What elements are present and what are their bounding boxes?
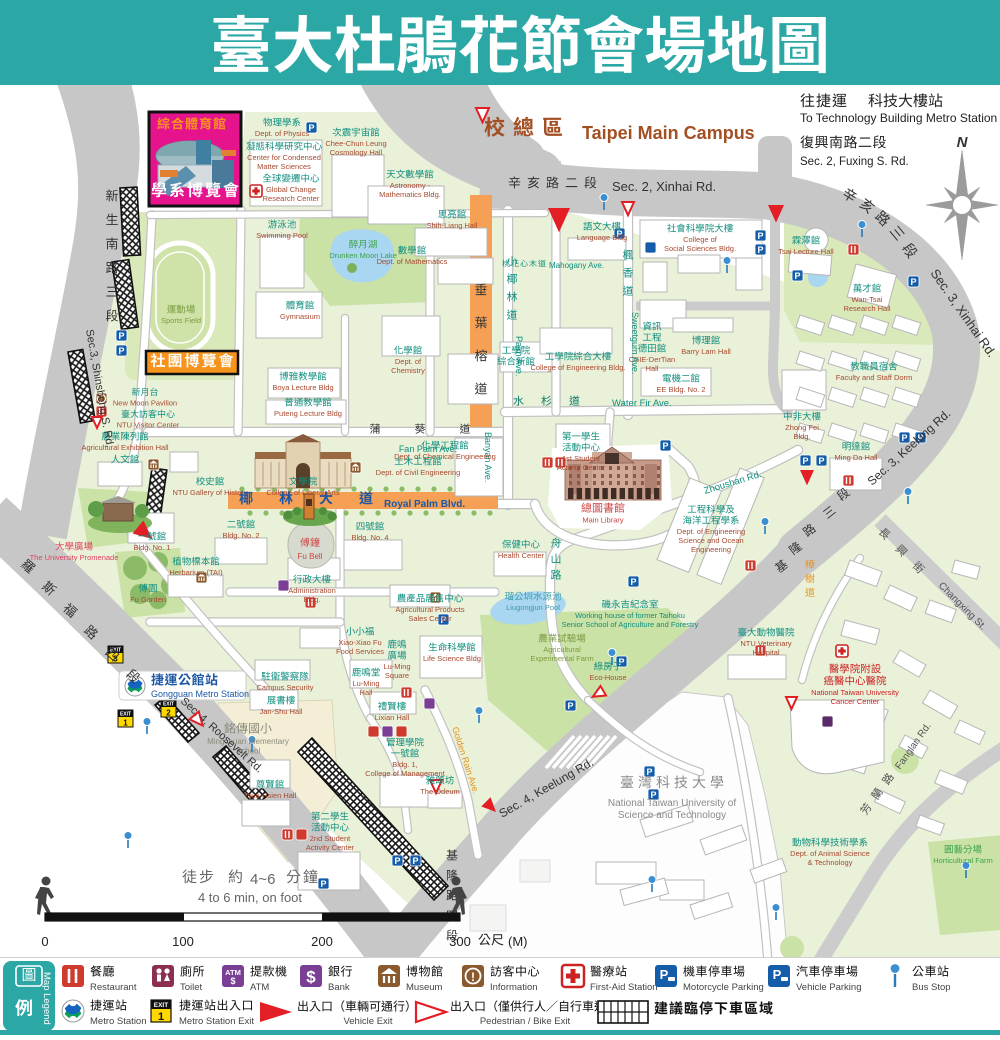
svg-text:Vehicle Exit: Vehicle Exit [343,1016,392,1027]
svg-text:College of Engineering Bldg.: College of Engineering Bldg. [530,363,625,372]
svg-text:EXIT: EXIT [163,702,174,708]
svg-text:College of: College of [683,235,718,244]
svg-text:Liugongjun Pool: Liugongjun Pool [506,603,560,612]
svg-text:Matter Sciences: Matter Sciences [257,162,311,171]
svg-text:Tsai Lecture Hall: Tsai Lecture Hall [778,247,834,256]
svg-text:National Taiwan University of: National Taiwan University of [608,798,736,809]
svg-text:Barry Lam Hall: Barry Lam Hall [681,347,731,356]
svg-text:Gymnasium: Gymnasium [280,312,320,321]
svg-text:P: P [618,657,624,667]
svg-text:$: $ [306,968,316,987]
svg-text:Health Center: Health Center [498,551,545,560]
svg-text:Engineering: Engineering [691,545,731,554]
svg-text:Global Change: Global Change [266,185,316,194]
svg-text:Sports Field: Sports Field [161,316,201,325]
svg-text:Sec. 2, Fuxing S. Rd.: Sec. 2, Fuxing S. Rd. [800,156,909,168]
svg-text:Dept. of Civil Engineering: Dept. of Civil Engineering [376,468,461,477]
svg-text:Museum: Museum [406,982,443,993]
svg-text:Fan Palm Ave.: Fan Palm Ave. [399,444,457,454]
svg-text:Eco-House: Eco-House [589,673,626,682]
svg-text:The University Promenade: The University Promenade [30,553,119,562]
svg-text:P: P [773,967,782,982]
svg-text:Drunken Moon Lake: Drunken Moon Lake [329,251,397,260]
svg-text:P: P [412,856,418,866]
svg-text:Boya Lecture Bldg: Boya Lecture Bldg [272,383,333,392]
svg-text:Bldg.: Bldg. [303,595,320,604]
svg-text:Metro Station Exit: Metro Station Exit [179,1016,254,1027]
svg-text:Bus Stop: Bus Stop [912,982,951,993]
svg-text:Activity Center: Activity Center [557,463,606,472]
svg-text:Life Science Bldg: Life Science Bldg [423,654,481,663]
svg-text:Agricultural Products: Agricultural Products [395,605,464,614]
svg-text:Bldg. No. 1: Bldg. No. 1 [133,543,170,552]
svg-text:NTU Gallery of History: NTU Gallery of History [172,488,247,497]
svg-text:P: P [567,701,573,711]
svg-text:Metro Station: Metro Station [90,1016,147,1027]
svg-text:Mahogany Ave.: Mahogany Ave. [549,261,604,270]
svg-text:P: P [630,577,636,587]
svg-text:Jan-Shu Hall: Jan-Shu Hall [260,707,303,716]
svg-text:300: 300 [449,934,471,949]
svg-text:EE Bldg. No. 2: EE Bldg. No. 2 [656,385,705,394]
svg-text:P: P [646,767,652,777]
svg-text:Dept. of Animal Science: Dept. of Animal Science [790,849,870,858]
svg-text:Campus Security: Campus Security [256,683,313,692]
svg-text:Water Fir Ave.: Water Fir Ave. [612,398,672,409]
svg-text:Astronomy -: Astronomy - [390,181,431,190]
svg-text:NTU Visitor Center: NTU Visitor Center [117,421,180,430]
svg-text:Activity Center: Activity Center [306,843,355,852]
svg-text:Administration: Administration [288,586,336,595]
svg-text:Hospital: Hospital [752,648,779,657]
svg-text:P: P [802,456,808,466]
svg-text:Senior School of Agriculture a: Senior School of Agriculture and Forestr… [562,620,699,629]
svg-text:200: 200 [311,934,333,949]
svg-text:P: P [394,856,400,866]
svg-text:4 to 6 min, on foot: 4 to 6 min, on foot [198,890,302,905]
svg-text:2nd Student: 2nd Student [310,834,351,843]
svg-text:Gongguan Metro Station: Gongguan Metro Station [151,689,249,699]
svg-text:Zhong Fei: Zhong Fei [785,423,819,432]
svg-text:Lu-Ming: Lu-Ming [383,662,410,671]
svg-text:Sec. 2, Xinhai Rd.: Sec. 2, Xinhai Rd. [612,179,716,194]
svg-text:Language Bldg: Language Bldg [577,233,627,242]
svg-text:P: P [660,967,669,982]
svg-text:1: 1 [123,719,128,728]
svg-text:Mathematics Bldg.: Mathematics Bldg. [379,190,441,199]
svg-text:National Taiwan University: National Taiwan University [811,688,899,697]
svg-text:Hall: Hall [646,364,659,373]
svg-text:Agricultural Exhibition Hall: Agricultural Exhibition Hall [81,443,168,452]
svg-text:(M): (M) [508,934,528,949]
svg-text:Fu Garden: Fu Garden [130,595,166,604]
svg-text:Bldg.: Bldg. [793,432,810,441]
svg-text:Lu-Ming: Lu-Ming [352,679,379,688]
svg-text:P: P [662,441,668,451]
svg-text:Map Legend: Map Legend [41,972,52,1025]
svg-text:New Moon Pavilion: New Moon Pavilion [113,399,177,408]
svg-text:Royal Palm Blvd.: Royal Palm Blvd. [384,499,465,510]
svg-text:Sales Center: Sales Center [408,614,452,623]
svg-text:Wan-Tsai: Wan-Tsai [852,295,883,304]
svg-text:College of Management: College of Management [365,769,446,778]
svg-text:Fu Bell: Fu Bell [298,552,323,561]
svg-text:Banyan Ave.: Banyan Ave. [483,432,493,482]
svg-text:Restaurant: Restaurant [90,982,137,993]
svg-text:Bldg. No. 2: Bldg. No. 2 [222,531,259,540]
svg-text:Palm Ave.: Palm Ave. [514,336,524,376]
svg-text:Research Center: Research Center [263,194,320,203]
svg-text:NTU Veterinary: NTU Veterinary [740,639,792,648]
svg-text:P: P [910,277,916,287]
svg-text:Center for Condensed: Center for Condensed [247,153,321,162]
svg-text:Swimming Pool: Swimming Pool [256,231,308,240]
svg-text:P: P [118,346,124,356]
svg-text:N: N [957,134,969,151]
svg-text:Xiao-Xiao Fu: Xiao-Xiao Fu [338,638,381,647]
svg-text:Lixian Hall: Lixian Hall [375,713,410,722]
svg-text:Working house of former Taihok: Working house of former Taihoku [575,611,685,620]
svg-text:Food Services: Food Services [336,647,384,656]
svg-text:P: P [794,271,800,281]
svg-text:P: P [757,245,763,255]
svg-text:Bldg. No. 4: Bldg. No. 4 [351,533,388,542]
svg-text:Square: Square [385,671,409,680]
svg-text:P: P [320,879,326,889]
svg-text:Toilet: Toilet [180,982,203,993]
svg-text:Agricultural: Agricultural [543,645,581,654]
svg-text:Chee-Chun Leung: Chee-Chun Leung [325,139,386,148]
svg-text:4~6: 4~6 [250,871,275,888]
svg-text:1: 1 [158,1011,164,1023]
svg-text:$: $ [230,976,235,986]
svg-text:Faculty and Staff Dorm: Faculty and Staff Dorm [836,373,913,382]
svg-text:Bank: Bank [328,982,350,993]
svg-text:Social Sciences Bldg.: Social Sciences Bldg. [664,244,736,253]
svg-text:Science and Technology: Science and Technology [618,810,726,821]
svg-text:Horticultural Farm: Horticultural Farm [933,856,993,865]
svg-text:Science and Ocean: Science and Ocean [678,536,743,545]
svg-text:The Odeum: The Odeum [420,787,460,796]
svg-text:!: ! [471,970,475,984]
svg-text:Research Hall: Research Hall [843,304,890,313]
svg-text:Information: Information [490,982,538,993]
svg-text:Ming Da Hall: Ming Da Hall [835,453,878,462]
svg-text:Tsun-Hsien Hall: Tsun-Hsien Hall [244,791,297,800]
svg-text:Bldg. 1,: Bldg. 1, [392,760,417,769]
svg-text:EXIT: EXIT [154,1002,168,1009]
svg-text:P: P [818,456,824,466]
svg-text:Hall: Hall [360,688,373,697]
svg-text:P: P [308,123,314,133]
svg-text:Herbarium (TAI): Herbarium (TAI) [169,568,223,577]
svg-text:P: P [757,231,763,241]
svg-text:ATM: ATM [250,982,269,993]
svg-text:Cancer Center: Cancer Center [831,697,880,706]
svg-text:Dept. of: Dept. of [395,357,422,366]
svg-text:Experimental Farm: Experimental Farm [530,654,593,663]
svg-text:Motorcycle Parking: Motorcycle Parking [683,982,764,993]
svg-text:Taipei Main Campus: Taipei Main Campus [582,123,755,143]
svg-text:EXIT: EXIT [120,712,131,718]
svg-text:Chemistry: Chemistry [391,366,425,375]
svg-text:Dept. of Physics: Dept. of Physics [255,129,309,138]
svg-text:1st Student: 1st Student [562,454,601,463]
svg-text:To Technology Building Metro S: To Technology Building Metro Station [800,111,997,125]
svg-text:Shih-Liang Hall: Shih-Liang Hall [427,221,478,230]
svg-text:P: P [118,331,124,341]
svg-text:Dept. of Engineering: Dept. of Engineering [677,527,745,536]
svg-text:100: 100 [172,934,194,949]
svg-text:Sweetgum Ave.: Sweetgum Ave. [630,312,640,374]
svg-text:Puteng Lecture Bldg: Puteng Lecture Bldg [274,409,342,418]
svg-text:& Technology: & Technology [808,858,853,867]
svg-text:2: 2 [166,709,171,718]
svg-text:Main Library: Main Library [582,516,624,525]
svg-text:Pedestrian / Bike Exit: Pedestrian / Bike Exit [480,1016,571,1027]
svg-text:Cosmology Hall: Cosmology Hall [330,148,383,157]
svg-text:First-Aid Station: First-Aid Station [590,982,658,993]
svg-text:0: 0 [41,934,48,949]
svg-text:Vehicle Parking: Vehicle Parking [796,982,861,993]
